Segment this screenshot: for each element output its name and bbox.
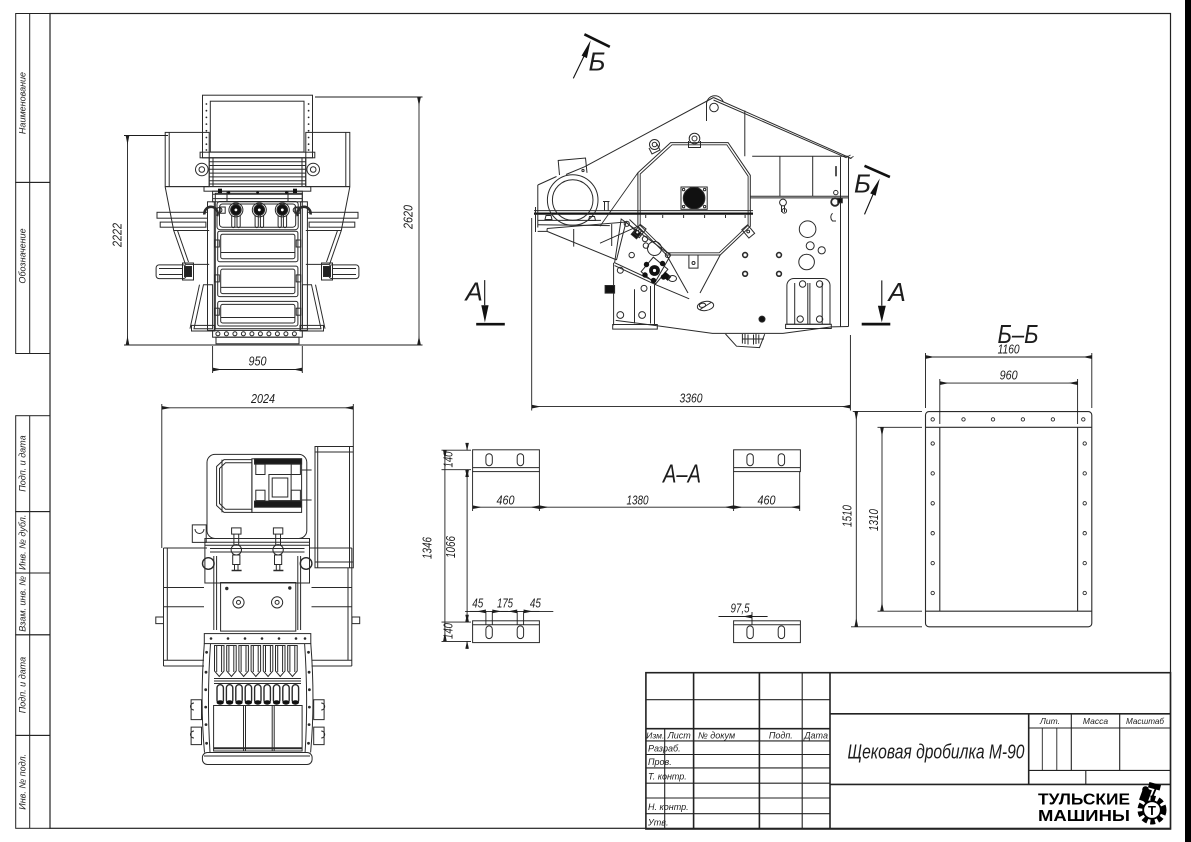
svg-text:Взам. инв. №: Взам. инв. № [18, 576, 28, 632]
svg-text:460: 460 [758, 493, 777, 508]
svg-text:950: 950 [249, 354, 268, 369]
svg-text:Подп. и дата: Подп. и дата [18, 435, 28, 491]
svg-text:Т: Т [1148, 803, 1156, 818]
svg-text:140: 140 [441, 451, 456, 468]
svg-text:Н. контр.: Н. контр. [648, 802, 689, 812]
svg-text:Масштаб: Масштаб [1126, 716, 1165, 726]
svg-text:45: 45 [472, 596, 484, 611]
svg-text:1346: 1346 [420, 536, 435, 559]
svg-text:460: 460 [497, 493, 516, 508]
svg-text:ТУЛЬСКИЕ: ТУЛЬСКИЕ [1038, 792, 1130, 809]
svg-text:Лист: Лист [667, 731, 692, 741]
svg-text:45: 45 [530, 596, 542, 611]
svg-text:Б: Б [854, 168, 871, 198]
svg-text:А: А [464, 277, 483, 307]
svg-text:1066: 1066 [443, 535, 458, 558]
svg-text:№ докум: № докум [698, 731, 735, 741]
svg-text:Дата: Дата [803, 731, 828, 741]
svg-text:Т. контр.: Т. контр. [648, 772, 687, 782]
svg-text:2620: 2620 [401, 204, 416, 229]
svg-text:Б–Б: Б–Б [998, 319, 1039, 349]
svg-text:2024: 2024 [250, 391, 275, 406]
svg-text:1310: 1310 [866, 508, 881, 531]
svg-text:2222: 2222 [110, 222, 125, 247]
svg-text:А–А: А–А [661, 458, 701, 488]
svg-text:97,5: 97,5 [731, 601, 751, 616]
svg-text:Лит.: Лит. [1039, 716, 1060, 726]
svg-text:Щековая дробилка М-90: Щековая дробилка М-90 [848, 742, 1025, 764]
svg-text:1510: 1510 [840, 504, 855, 527]
svg-text:Утв.: Утв. [647, 818, 668, 828]
svg-text:Масса: Масса [1083, 716, 1108, 726]
svg-text:Обозначение: Обозначение [18, 228, 28, 283]
svg-text:175: 175 [497, 596, 514, 611]
svg-text:Подп.: Подп. [769, 731, 793, 741]
svg-text:1380: 1380 [627, 493, 650, 508]
svg-text:3360: 3360 [680, 391, 704, 406]
svg-text:960: 960 [1000, 368, 1019, 383]
svg-text:Б: Б [589, 46, 606, 76]
svg-text:Пров.: Пров. [648, 757, 672, 767]
svg-text:Инв. № подл.: Инв. № подл. [18, 754, 28, 810]
svg-text:Изм.: Изм. [646, 731, 664, 741]
svg-text:Разраб.: Разраб. [648, 744, 681, 754]
svg-text:Подп. и дата: Подп. и дата [18, 657, 28, 713]
svg-text:140: 140 [441, 622, 456, 639]
svg-text:Инв. № дубл.: Инв. № дубл. [18, 515, 28, 570]
svg-text:Наименование: Наименование [18, 72, 28, 134]
svg-text:МАШИНЫ: МАШИНЫ [1038, 808, 1130, 825]
svg-text:А: А [887, 277, 906, 307]
